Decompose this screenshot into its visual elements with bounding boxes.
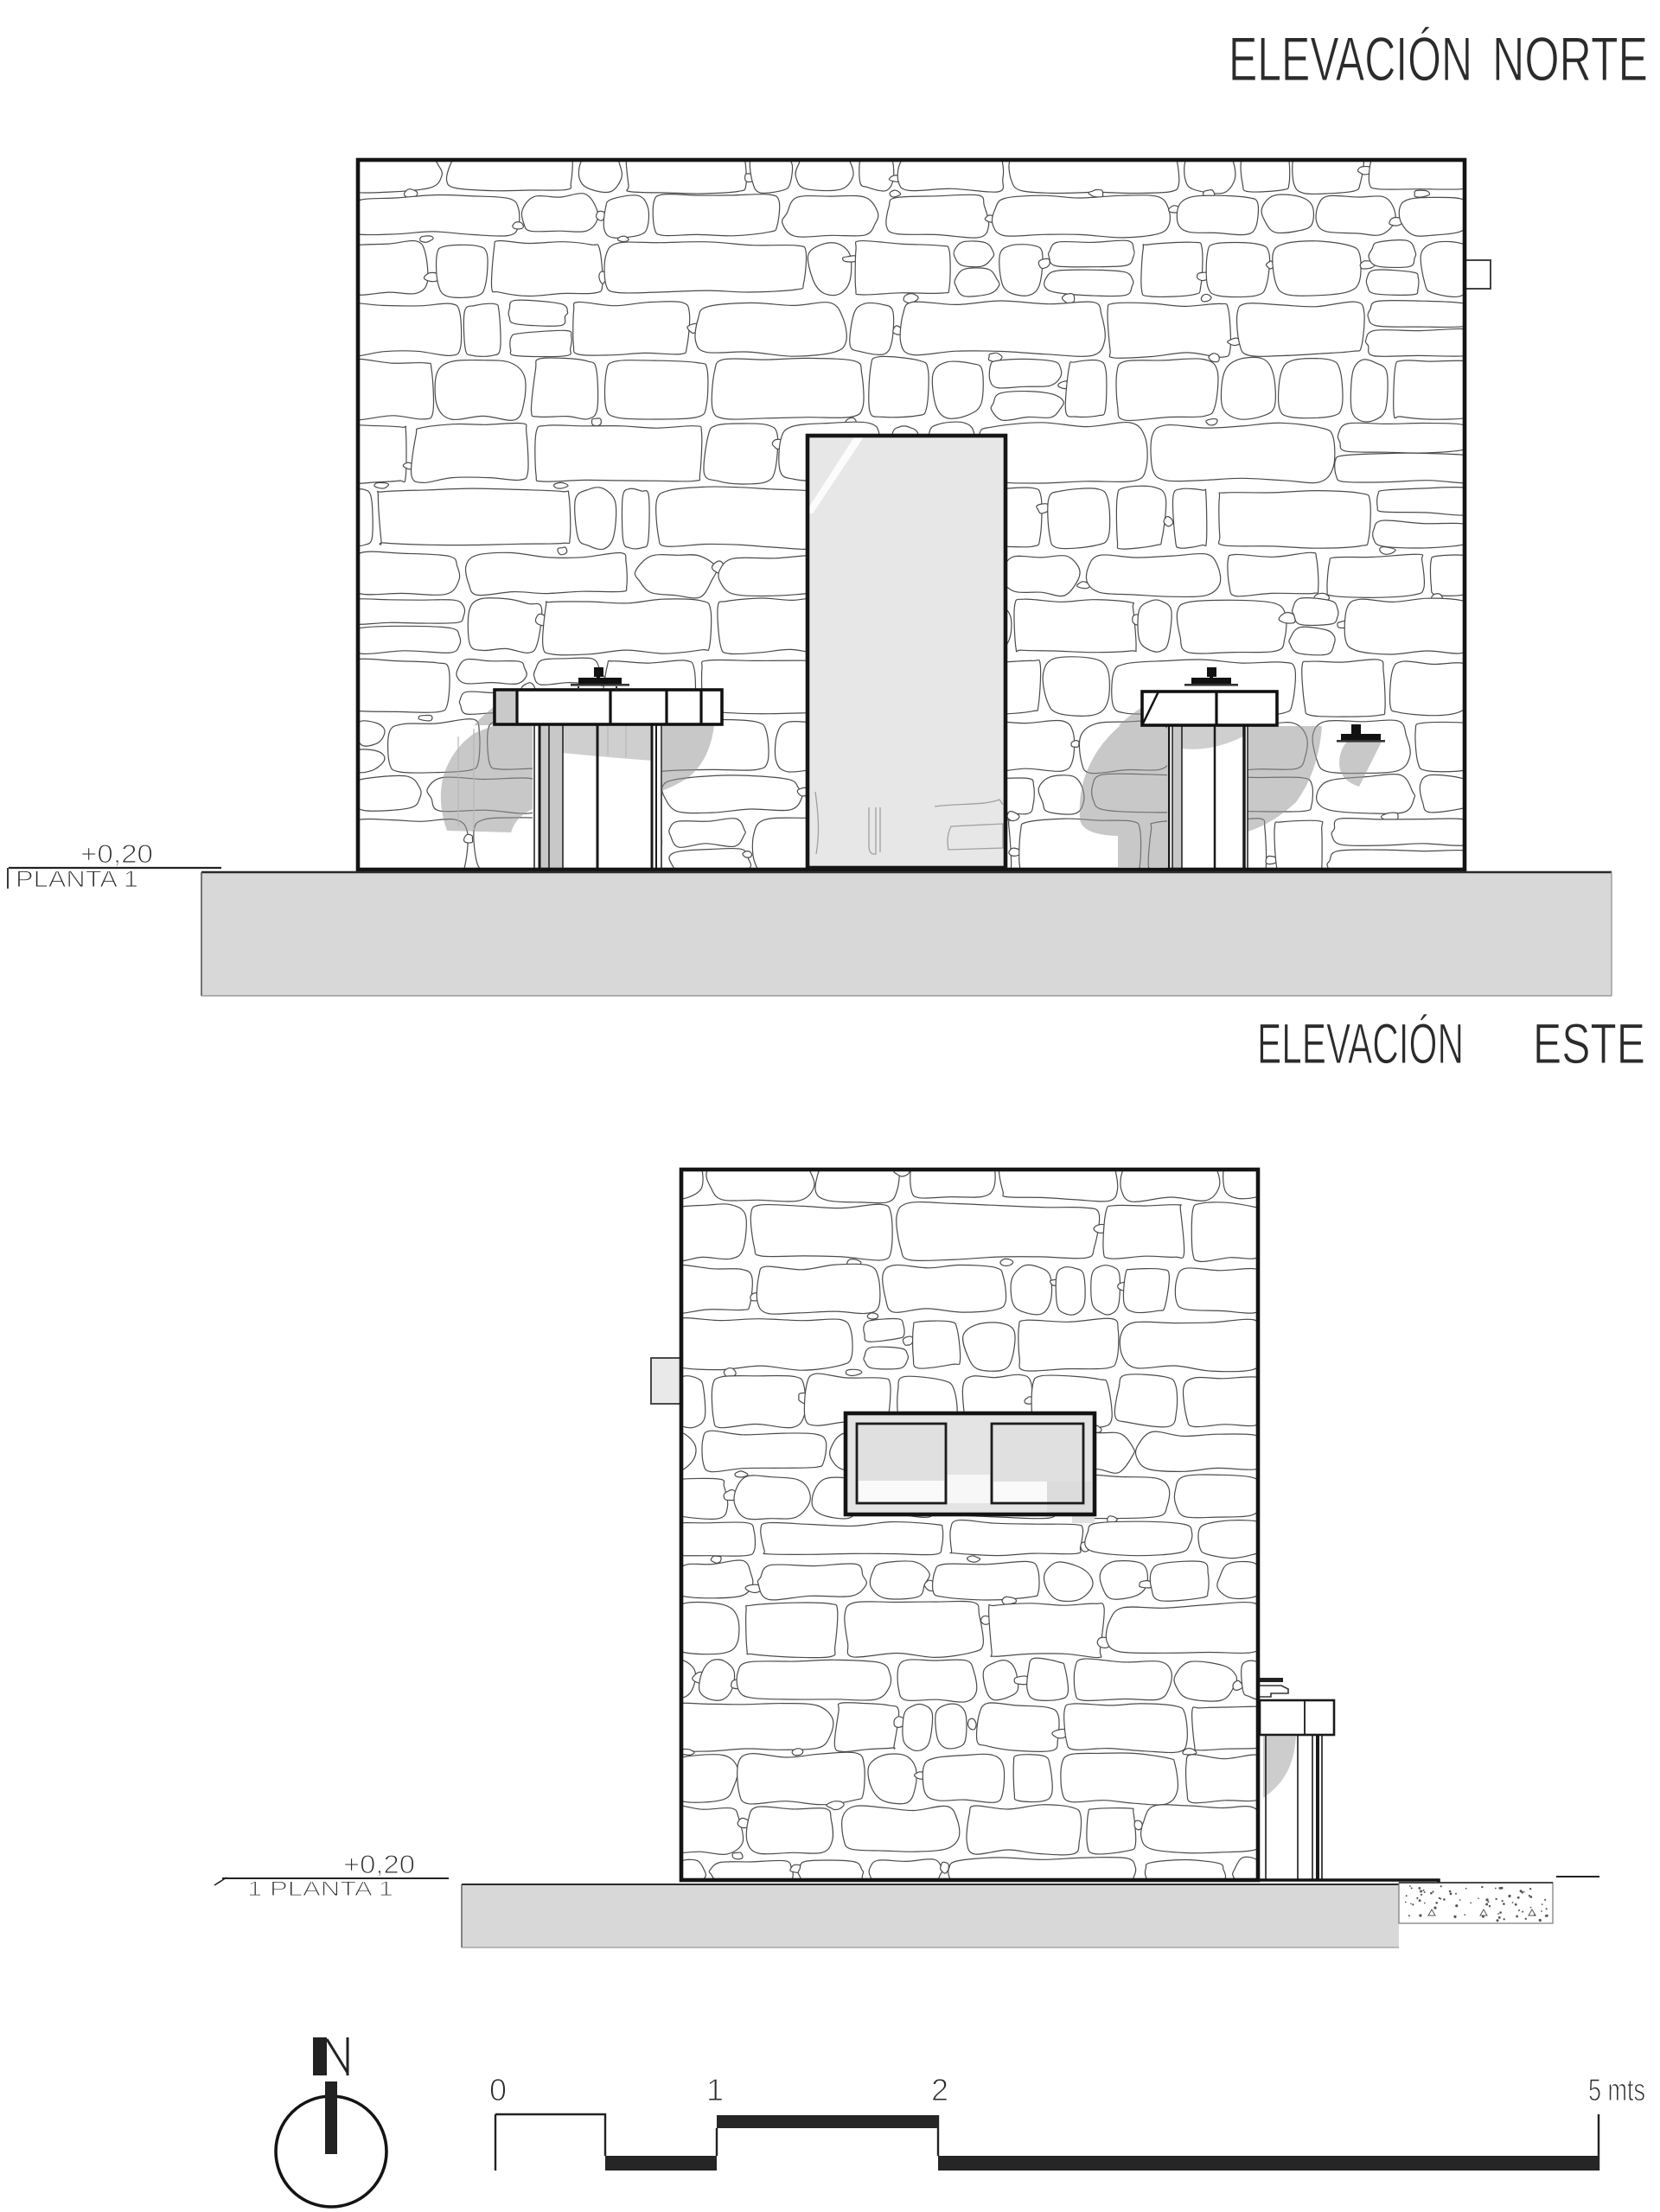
svg-text:ELEVACIÓN: ELEVACIÓN [1229, 25, 1472, 94]
svg-text:0: 0 [489, 2072, 507, 2107]
svg-text:+0,20: +0,20 [80, 840, 153, 869]
svg-text:ELEVACIÓN: ELEVACIÓN [1257, 1011, 1464, 1075]
svg-text:PLANTA 1: PLANTA 1 [16, 866, 138, 892]
svg-text:5 mts: 5 mts [1588, 2072, 1645, 2107]
svg-text:1: 1 [706, 2072, 724, 2107]
svg-text:2: 2 [931, 2072, 948, 2107]
svg-text:ESTE: ESTE [1533, 1011, 1645, 1075]
svg-text:+0,20: +0,20 [343, 1851, 415, 1879]
svg-text:NORTE: NORTE [1492, 25, 1648, 94]
svg-text:1 PLANTA 1: 1 PLANTA 1 [247, 1877, 393, 1901]
